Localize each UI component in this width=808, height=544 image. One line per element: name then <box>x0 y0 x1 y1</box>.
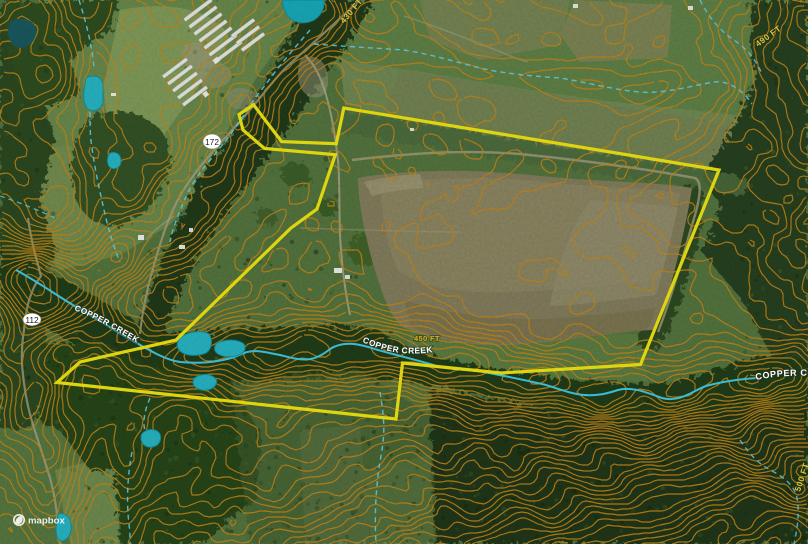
svg-text:172: 172 <box>205 137 219 147</box>
svg-text:mapbox: mapbox <box>28 516 65 527</box>
svg-text:112: 112 <box>25 315 39 325</box>
svg-text:450 FT: 450 FT <box>414 334 440 343</box>
